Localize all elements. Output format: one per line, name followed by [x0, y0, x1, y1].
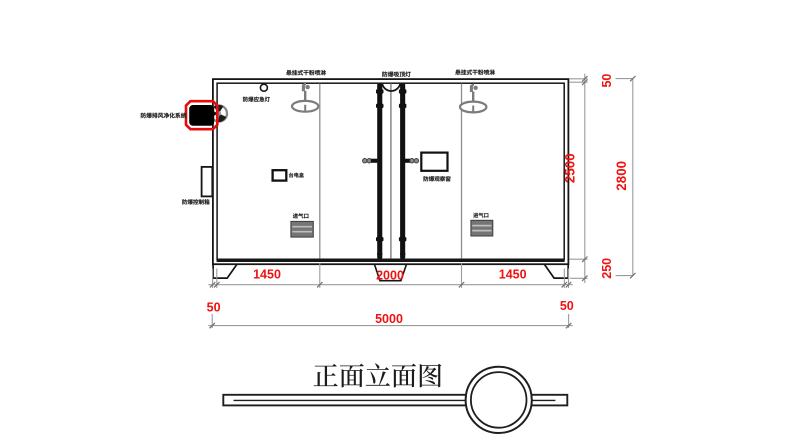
svg-text:2500: 2500 [563, 153, 578, 183]
svg-text:1450: 1450 [253, 268, 281, 282]
svg-text:2800: 2800 [614, 161, 629, 191]
svg-text:2000: 2000 [376, 269, 404, 283]
svg-text:1450: 1450 [499, 268, 527, 282]
svg-text:50: 50 [560, 299, 574, 313]
svg-text:5000: 5000 [375, 312, 403, 326]
svg-text:50: 50 [600, 74, 614, 88]
svg-text:250: 250 [600, 258, 614, 279]
svg-text:50: 50 [207, 301, 221, 315]
